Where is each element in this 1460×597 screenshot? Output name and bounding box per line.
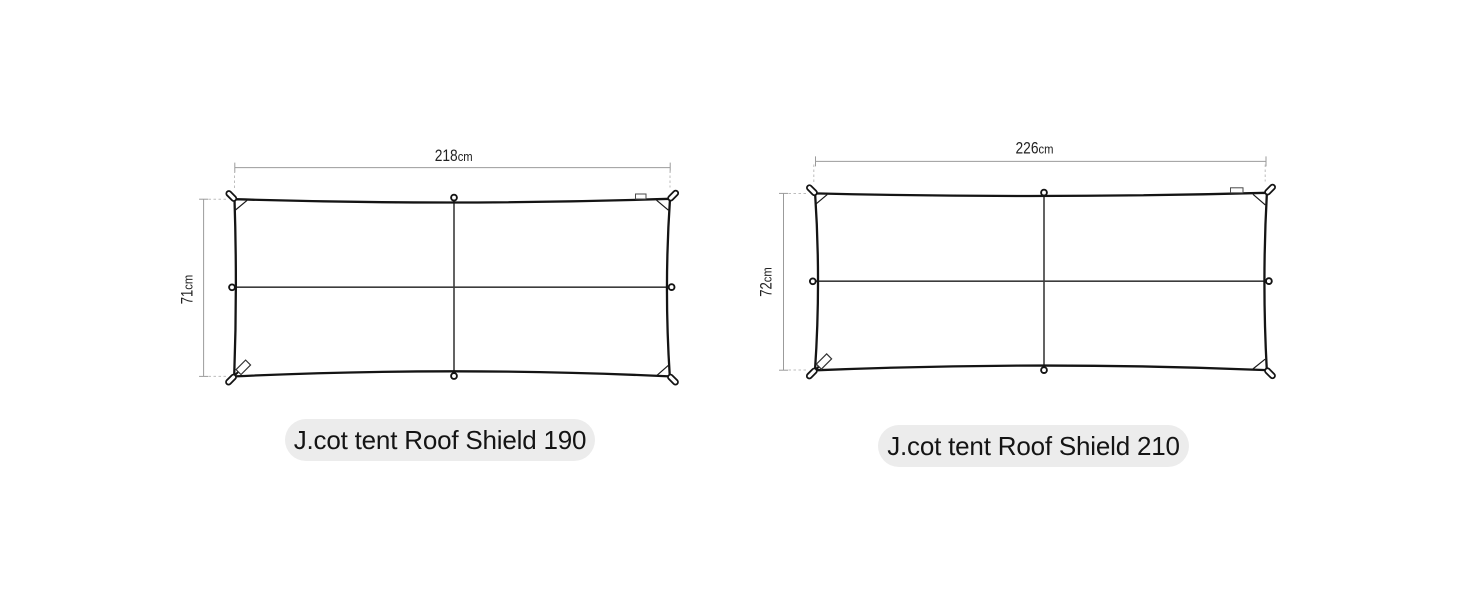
- svg-text:218cm: 218cm: [435, 147, 473, 165]
- svg-text:71cm: 71cm: [178, 275, 196, 305]
- svg-text:72cm: 72cm: [758, 267, 776, 297]
- svg-text:226cm: 226cm: [1016, 140, 1054, 158]
